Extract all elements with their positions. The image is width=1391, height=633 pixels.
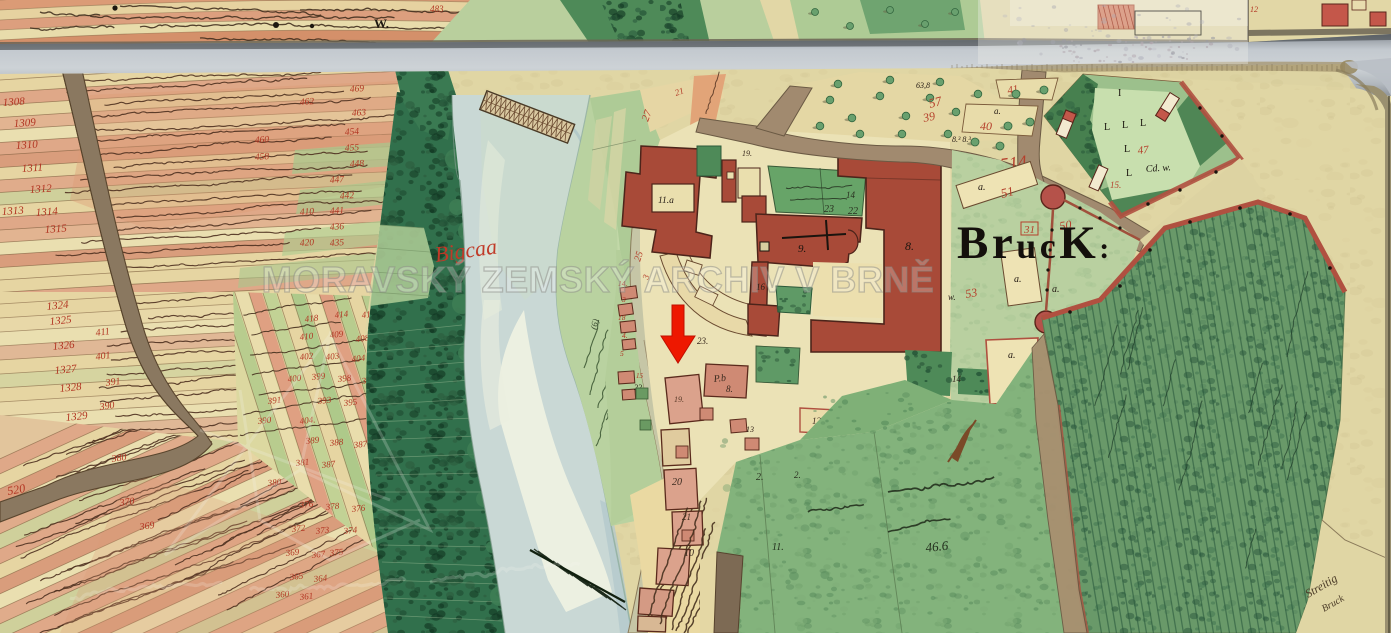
svg-text:15: 15 xyxy=(636,372,644,380)
svg-text:20: 20 xyxy=(672,477,682,488)
svg-text:23: 23 xyxy=(824,204,834,215)
svg-text:1329: 1329 xyxy=(65,410,89,424)
svg-text:1310: 1310 xyxy=(15,138,38,152)
svg-text:469: 469 xyxy=(350,84,365,95)
svg-text:460: 460 xyxy=(255,135,270,146)
svg-text:410: 410 xyxy=(300,207,315,218)
svg-text:14: 14 xyxy=(952,374,962,384)
svg-text:411: 411 xyxy=(95,326,111,339)
svg-text:378: 378 xyxy=(324,501,340,513)
svg-text:395: 395 xyxy=(342,397,358,409)
svg-text:1309: 1309 xyxy=(13,116,36,130)
svg-text:442: 442 xyxy=(340,191,355,202)
svg-text:483: 483 xyxy=(430,4,444,14)
svg-text:12: 12 xyxy=(1250,5,1258,14)
svg-text:1326: 1326 xyxy=(52,339,76,353)
svg-text:2.: 2. xyxy=(794,470,801,480)
svg-text:414: 414 xyxy=(334,309,349,320)
svg-text:L: L xyxy=(1104,122,1110,133)
svg-text:a.: a. xyxy=(1052,284,1060,295)
svg-text:a.: a. xyxy=(978,182,986,193)
svg-text:8.: 8. xyxy=(905,239,914,253)
svg-text:2.: 2. xyxy=(756,472,764,483)
svg-text:4.: 4. xyxy=(622,331,628,340)
svg-text:370: 370 xyxy=(118,496,135,509)
svg-text:393: 393 xyxy=(316,395,332,407)
svg-text:441: 441 xyxy=(330,206,345,217)
svg-text:MORAVSKÝ ZEMSKÝ ARCHIV V BRNĚ: MORAVSKÝ ZEMSKÝ ARCHIV V BRNĚ xyxy=(262,258,935,300)
svg-text:387: 387 xyxy=(320,459,336,471)
svg-text:420: 420 xyxy=(300,238,315,249)
svg-text:447: 447 xyxy=(330,175,346,186)
svg-text:376: 376 xyxy=(350,503,366,515)
svg-text:L: L xyxy=(1126,168,1132,179)
svg-text:462: 462 xyxy=(300,97,315,108)
svg-text:P.b: P.b xyxy=(712,373,726,385)
svg-text:L: L xyxy=(1140,118,1146,129)
svg-text:53: 53 xyxy=(964,285,978,301)
svg-text:1311: 1311 xyxy=(21,162,43,175)
svg-text:372: 372 xyxy=(290,523,306,535)
svg-text:13: 13 xyxy=(746,425,754,434)
svg-text:463: 463 xyxy=(352,108,367,119)
svg-text:47: 47 xyxy=(1137,144,1150,157)
svg-text:1328: 1328 xyxy=(59,381,83,395)
svg-text:369: 369 xyxy=(138,520,155,533)
svg-text:a.: a. xyxy=(994,106,1001,116)
svg-text:455: 455 xyxy=(345,143,360,154)
svg-text:22: 22 xyxy=(848,206,858,217)
svg-text:448: 448 xyxy=(350,159,365,170)
svg-text:L: L xyxy=(1122,120,1128,131)
svg-text:376: 376 xyxy=(298,499,314,511)
svg-text:374: 374 xyxy=(342,525,358,537)
svg-text:1327: 1327 xyxy=(54,363,78,377)
svg-text:W.: W. xyxy=(374,16,389,31)
svg-text:63,8: 63,8 xyxy=(916,81,930,90)
svg-text:401: 401 xyxy=(95,350,111,363)
svg-text:410: 410 xyxy=(299,331,314,342)
svg-text:1324: 1324 xyxy=(46,299,70,313)
svg-text:1315: 1315 xyxy=(44,222,67,236)
svg-text:1312: 1312 xyxy=(29,182,52,196)
svg-text:454: 454 xyxy=(345,127,360,138)
svg-text:19.: 19. xyxy=(674,395,684,404)
svg-text:a.: a. xyxy=(1014,274,1022,285)
svg-text:458: 458 xyxy=(255,152,270,163)
svg-text:387: 387 xyxy=(352,439,368,451)
svg-text:365: 365 xyxy=(288,571,304,583)
svg-text:19.: 19. xyxy=(742,149,752,158)
svg-text:11.a: 11.a xyxy=(658,196,674,206)
svg-text:11.: 11. xyxy=(772,542,784,553)
svg-text:9.: 9. xyxy=(798,243,806,255)
svg-text:8.³ 8.³: 8.³ 8.³ xyxy=(952,135,971,144)
svg-text:18: 18 xyxy=(618,313,626,322)
svg-text:8.: 8. xyxy=(726,384,733,394)
svg-text:5: 5 xyxy=(620,349,624,358)
svg-text:w.: w. xyxy=(948,292,956,302)
svg-text:1314: 1314 xyxy=(35,205,58,219)
svg-text:369: 369 xyxy=(284,547,300,559)
svg-text:1325: 1325 xyxy=(49,314,73,328)
svg-text:390: 390 xyxy=(98,400,115,413)
svg-text:418: 418 xyxy=(304,313,319,324)
svg-text:364: 364 xyxy=(312,573,328,585)
svg-text:404: 404 xyxy=(351,353,366,364)
svg-text:399: 399 xyxy=(310,371,326,383)
svg-text:1313: 1313 xyxy=(1,204,24,218)
svg-text:14: 14 xyxy=(846,190,856,200)
svg-text:23.: 23. xyxy=(697,336,708,346)
svg-text:15.: 15. xyxy=(1110,180,1121,190)
svg-text:373: 373 xyxy=(314,525,330,537)
svg-text:436: 436 xyxy=(330,222,345,233)
svg-text:46.6: 46.6 xyxy=(925,538,950,555)
svg-text:I: I xyxy=(1118,88,1121,99)
svg-text:1308: 1308 xyxy=(2,95,25,109)
svg-text:Cd. w.: Cd. w. xyxy=(1145,162,1171,175)
svg-text:a.: a. xyxy=(1008,350,1016,361)
svg-text:361: 361 xyxy=(298,591,313,602)
svg-text:388: 388 xyxy=(328,437,344,449)
svg-text:435: 435 xyxy=(330,238,345,249)
svg-text:L: L xyxy=(1124,144,1130,155)
svg-text:40: 40 xyxy=(980,119,992,133)
svg-text:391: 391 xyxy=(104,376,121,389)
